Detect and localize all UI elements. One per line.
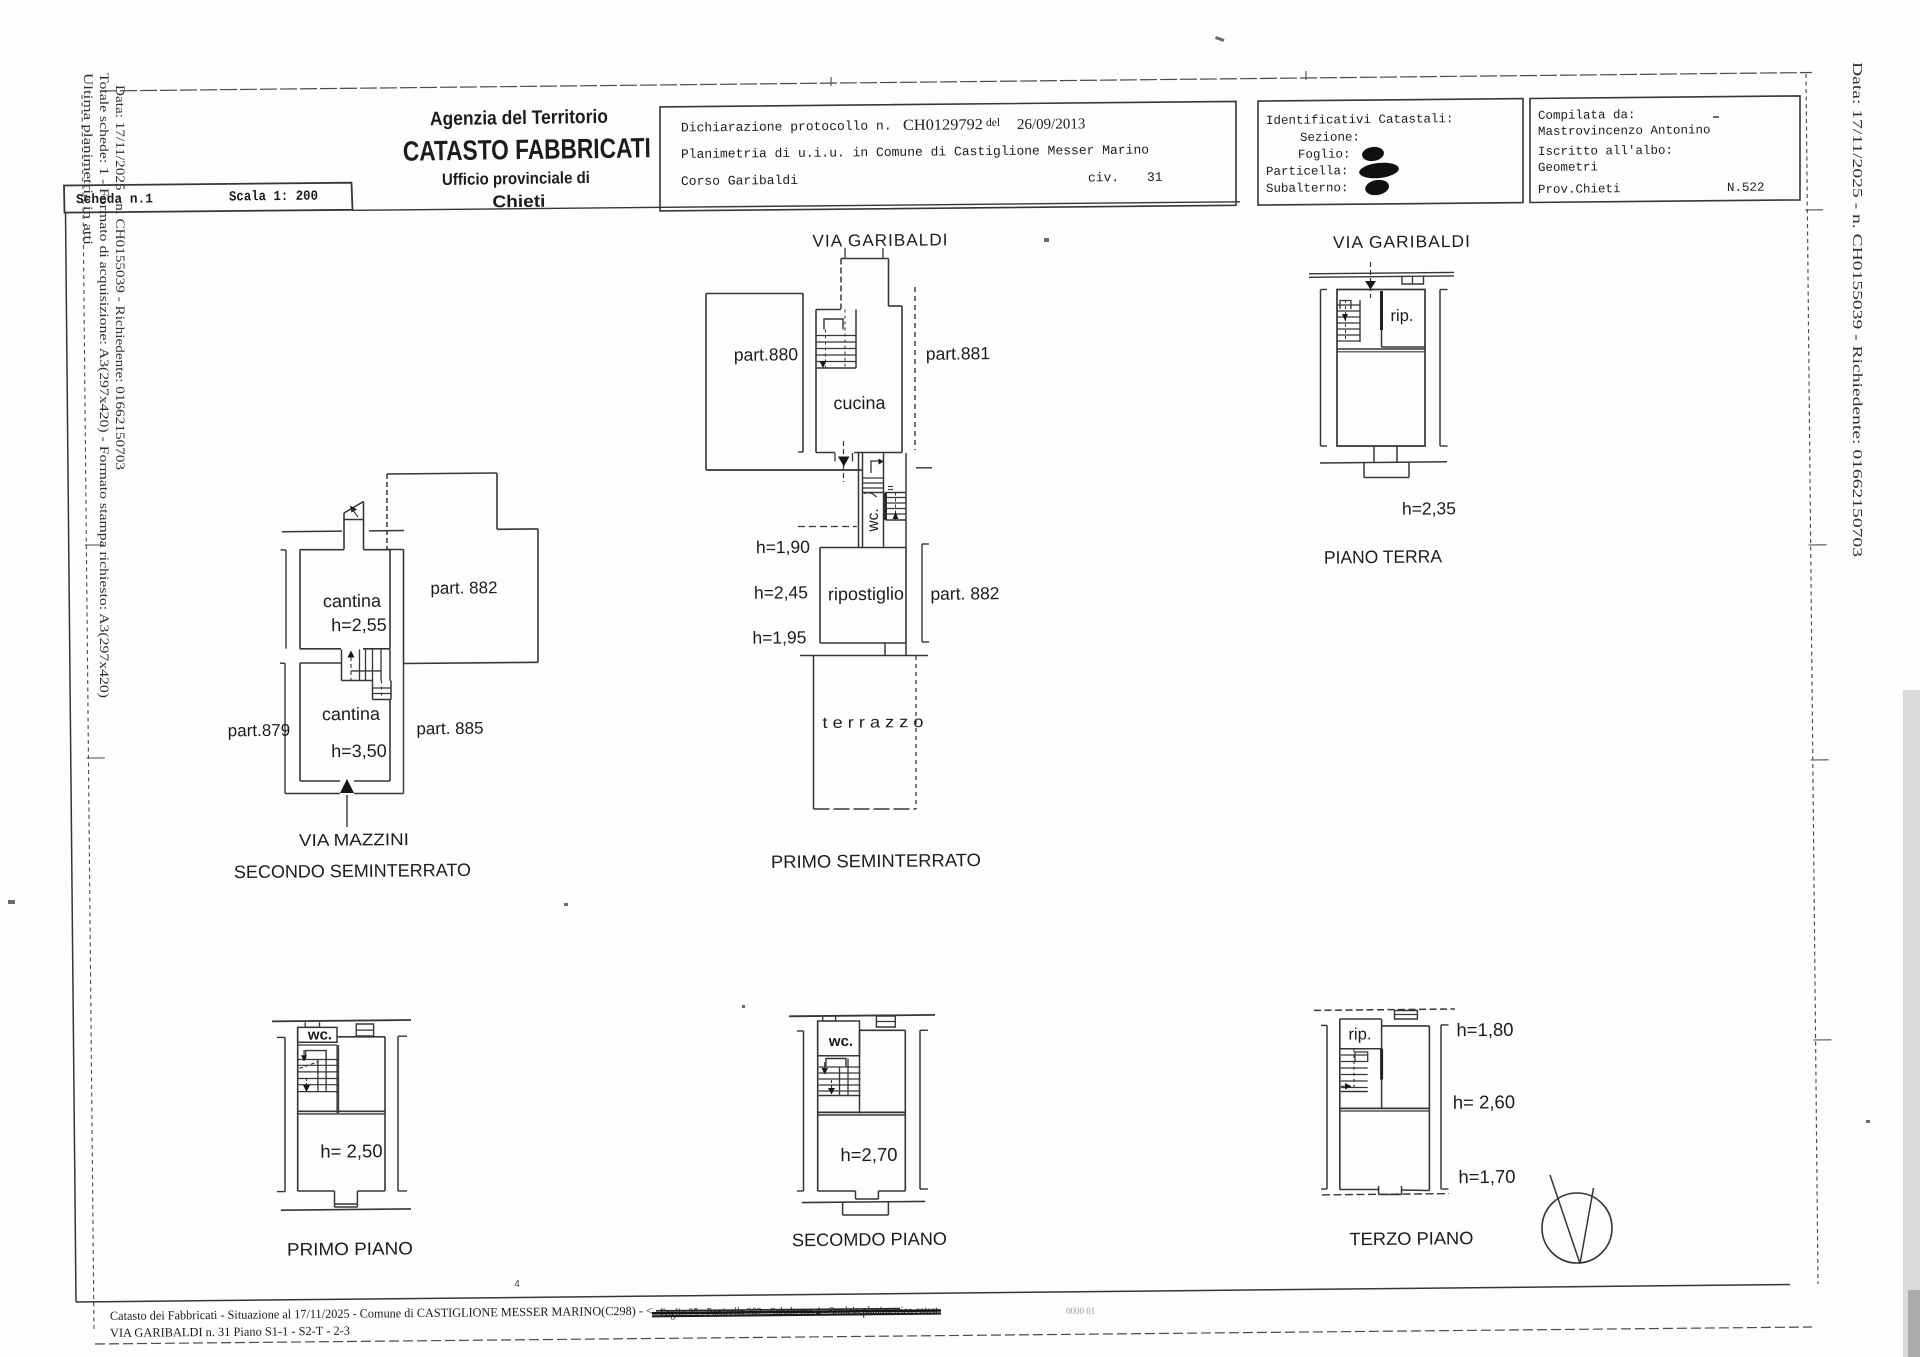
svg-text:Mastrovincenzo Antonino: Mastrovincenzo Antonino xyxy=(1538,123,1711,139)
svg-text:del: del xyxy=(986,117,1000,129)
svg-text:part.880: part.880 xyxy=(734,344,799,365)
svg-text:31: 31 xyxy=(1147,170,1163,185)
svg-text:Agenzia del Territorio: Agenzia del Territorio xyxy=(430,106,608,130)
svg-text:h=2,35: h=2,35 xyxy=(1402,498,1456,519)
svg-text:Particella:: Particella: xyxy=(1266,164,1349,179)
svg-text:rip.: rip. xyxy=(1390,307,1413,325)
svg-text:ripostiglio: ripostiglio xyxy=(828,584,904,605)
svg-text:wc.: wc. xyxy=(307,1026,332,1043)
svg-text:h=1,90: h=1,90 xyxy=(756,537,810,558)
svg-text:wc.: wc. xyxy=(828,1033,853,1050)
svg-text:part. 882: part. 882 xyxy=(430,578,497,598)
svg-text:civ.: civ. xyxy=(1088,170,1119,185)
svg-text:h=2,55: h=2,55 xyxy=(331,615,387,636)
svg-text:Data: 17/11/2025 - n. CH015503: Data: 17/11/2025 - n. CH0155039 - Richie… xyxy=(113,85,128,470)
svg-text:Foglio:: Foglio: xyxy=(1298,147,1351,162)
svg-text:h=1,70: h=1,70 xyxy=(1458,1166,1515,1188)
svg-text:4: 4 xyxy=(514,1279,520,1290)
svg-text:Iscritto all'albo:: Iscritto all'albo: xyxy=(1538,144,1673,159)
svg-text:PRIMO PIANO: PRIMO PIANO xyxy=(287,1238,413,1259)
svg-text:0000 01: 0000 01 xyxy=(1066,1306,1095,1316)
svg-text:TERZO PIANO: TERZO PIANO xyxy=(1349,1228,1473,1249)
svg-text:h= 2,60: h= 2,60 xyxy=(1453,1091,1515,1113)
svg-text:h=1,80: h=1,80 xyxy=(1456,1019,1513,1041)
svg-text:h=3,50: h=3,50 xyxy=(331,741,387,762)
svg-text:VIA MAZZINI: VIA MAZZINI xyxy=(299,830,409,850)
svg-text:Ultima planimetria in atti: Ultima planimetria in atti xyxy=(81,73,96,245)
svg-text:PIANO TERRA: PIANO TERRA xyxy=(1324,546,1442,567)
svg-text:part. 885: part. 885 xyxy=(416,719,483,739)
svg-text:Scala 1: 200: Scala 1: 200 xyxy=(229,189,318,206)
svg-text:26/09/2013: 26/09/2013 xyxy=(1017,116,1085,133)
svg-text:Identificativi Catastali:: Identificativi Catastali: xyxy=(1266,112,1454,128)
svg-text:Totale schede: 1 - Formato di: Totale schede: 1 - Formato di acquisizio… xyxy=(97,73,112,698)
svg-text:Prov.Chieti: Prov.Chieti xyxy=(1538,182,1621,197)
svg-text:rip.: rip. xyxy=(1348,1025,1371,1043)
svg-text:Ufficio provinciale di: Ufficio provinciale di xyxy=(442,169,590,189)
svg-text:t e r r a z z o: t e r r a z z o xyxy=(822,714,923,732)
svg-text:VIA GARIBALDI: VIA GARIBALDI xyxy=(812,230,948,250)
svg-text:cucina: cucina xyxy=(833,393,886,414)
svg-text:Chieti: Chieti xyxy=(492,192,545,212)
svg-text:SECONDO SEMINTERRATO: SECONDO SEMINTERRATO xyxy=(234,860,471,882)
svg-text:CATASTO FABBRICATI: CATASTO FABBRICATI xyxy=(403,132,651,166)
svg-text:h=1,95: h=1,95 xyxy=(752,627,806,648)
svg-text:VIA GARIBALDI: VIA GARIBALDI xyxy=(1333,232,1471,252)
svg-text:cantina: cantina xyxy=(322,704,381,725)
svg-text:Compilata da:: Compilata da: xyxy=(1538,108,1636,123)
svg-text:Data: 17/11/2025 - n. CH015503: Data: 17/11/2025 - n. CH0155039 - Richie… xyxy=(1850,62,1865,557)
svg-text:h= 2,50: h= 2,50 xyxy=(320,1140,382,1162)
svg-text:PRIMO SEMINTERRATO: PRIMO SEMINTERRATO xyxy=(771,850,981,872)
svg-text:Sezione:: Sezione: xyxy=(1300,130,1360,145)
svg-text:VIA GARIBALDI n. 31 Piano S1-1: VIA GARIBALDI n. 31 Piano S1-1 - S2-T - … xyxy=(110,1324,350,1340)
svg-text:CH0129792: CH0129792 xyxy=(903,116,983,134)
svg-text:part. 882: part. 882 xyxy=(930,583,999,604)
svg-text:Planimetria di u.i.u. in Comun: Planimetria di u.i.u. in Comune di Casti… xyxy=(681,143,1149,162)
svg-text:SECOMDO PIANO: SECOMDO PIANO xyxy=(792,1229,947,1250)
svg-text:part.879: part.879 xyxy=(228,721,291,741)
svg-text:Subalterno:: Subalterno: xyxy=(1266,181,1349,196)
svg-text:Dichiarazione protocollo n.: Dichiarazione protocollo n. xyxy=(681,118,892,135)
svg-text:h=2,70: h=2,70 xyxy=(840,1144,897,1166)
svg-text:part.881: part.881 xyxy=(926,343,990,364)
svg-text:Corso Garibaldi: Corso Garibaldi xyxy=(681,173,798,189)
svg-text:cantina: cantina xyxy=(323,591,382,612)
svg-text:Catasto dei Fabbricati - Situa: Catasto dei Fabbricati - Situazione al 1… xyxy=(110,1304,653,1323)
svg-text:N.522: N.522 xyxy=(1727,181,1765,195)
svg-text:h=2,45: h=2,45 xyxy=(754,582,808,603)
svg-text:wc.: wc. xyxy=(865,508,882,532)
svg-text:Geometri: Geometri xyxy=(1538,160,1598,175)
